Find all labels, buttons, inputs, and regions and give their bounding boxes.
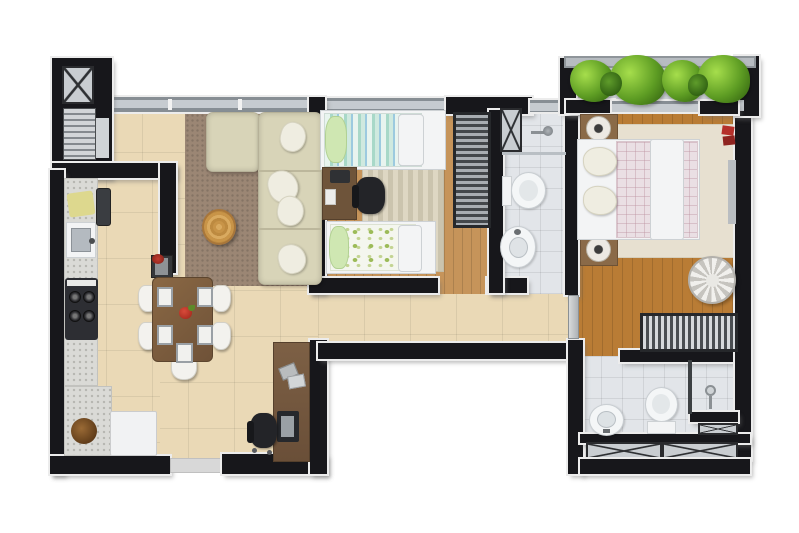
refrigerator — [110, 411, 157, 456]
stove — [65, 278, 98, 340]
wall-kitchen-left — [50, 170, 64, 474]
bed-2b-pillow — [329, 226, 349, 269]
stove-burner-4 — [83, 310, 95, 322]
elevator-shaft — [62, 66, 94, 104]
stove-controls — [67, 280, 96, 286]
dining-chair-right-1 — [211, 285, 231, 312]
centerpiece-leaf — [188, 305, 195, 311]
floor-corridor — [318, 288, 570, 345]
vent-window-shower — [698, 423, 738, 435]
office-chair-caster-2 — [267, 450, 272, 455]
wall-bottom-left — [50, 456, 170, 474]
lamp-top — [586, 116, 611, 141]
placemat-5 — [176, 343, 193, 363]
wardrobe-bedroom-2 — [453, 112, 491, 228]
sofa-chaise — [206, 112, 260, 172]
stairs — [63, 108, 96, 160]
window-living-room — [104, 97, 311, 112]
lamp-bottom — [586, 237, 611, 262]
desk2-monitor — [330, 170, 350, 183]
ensuite-faucet — [603, 429, 610, 433]
kitchen-faucet — [89, 238, 95, 244]
floor-plan — [0, 0, 799, 533]
kitchen-sink-basin — [71, 228, 91, 252]
shower-glass-ensuite — [688, 360, 692, 414]
wall-kitchen-top — [52, 163, 176, 178]
flower-vase — [152, 254, 164, 264]
wall-shower-band — [690, 412, 738, 422]
kitchen-appliance — [96, 188, 111, 226]
bed-2a-pillow — [325, 116, 347, 163]
stove-burner-2 — [83, 291, 95, 303]
bed-2a-blanket — [398, 114, 424, 166]
ensuite-sink-bowl — [597, 411, 616, 428]
bathroom-sink-bowl — [509, 237, 528, 258]
ensuite-toilet-tank — [647, 421, 676, 434]
chair-bedroom-2-seat — [355, 177, 385, 214]
office-desk — [273, 342, 310, 462]
wall-bedroom-2-bottom — [309, 278, 438, 293]
red-book-1 — [721, 125, 734, 136]
office-chair-caster-1 — [252, 448, 257, 453]
office-chair-back — [247, 421, 254, 443]
window-bathroom — [530, 100, 562, 112]
toilet-seat — [519, 180, 538, 201]
door-master — [568, 295, 579, 339]
window-mullion-2 — [238, 99, 242, 110]
wall-corridor-bottom — [318, 343, 580, 359]
coffee-table — [202, 209, 236, 245]
wall-master-top-left — [566, 100, 614, 113]
wall-ledge — [728, 160, 736, 224]
office-chair-seat — [250, 413, 277, 448]
bathroom-faucet — [514, 229, 521, 235]
placemat-3 — [157, 325, 173, 345]
placemat-2 — [197, 287, 213, 307]
chair-bedroom-2-back — [352, 185, 359, 208]
wall-ensuite-bottom-lower — [580, 459, 750, 474]
computer-screen — [281, 416, 294, 437]
wall-master-right — [735, 100, 751, 460]
slider-master-balcony — [612, 101, 702, 112]
dish-towel — [66, 190, 95, 217]
entrance-threshold — [170, 458, 222, 473]
ensuite-shower-head — [705, 385, 716, 396]
ensuite-toilet-seat — [652, 394, 670, 414]
stair-landing — [96, 118, 109, 158]
ensuite-shower-stem — [709, 396, 712, 409]
shower-head — [543, 126, 553, 136]
window-ensuite-2 — [662, 442, 738, 460]
bed-2b-blanket — [398, 225, 422, 272]
desk2-keyboard — [325, 189, 336, 205]
vent-shaft — [500, 108, 522, 152]
window-ensuite-1 — [586, 442, 662, 460]
window-mullion-1 — [168, 99, 172, 110]
placemat-4 — [197, 325, 213, 345]
sofa-seam-2 — [258, 228, 322, 230]
red-book-2 — [723, 135, 736, 145]
dining-chair-right-2 — [211, 322, 231, 350]
stove-burner-3 — [69, 310, 81, 322]
shower-glass — [502, 152, 566, 155]
wall-master-top-right — [700, 101, 738, 114]
dresser-master — [640, 313, 738, 352]
placemat-1 — [157, 287, 173, 307]
throw-blanket — [650, 139, 684, 240]
wall-office-right — [310, 340, 327, 474]
stove-burner-1 — [69, 291, 81, 303]
fruit-basket — [71, 418, 97, 444]
wall-ensuite-left — [568, 340, 583, 474]
chaise-center — [706, 274, 719, 287]
